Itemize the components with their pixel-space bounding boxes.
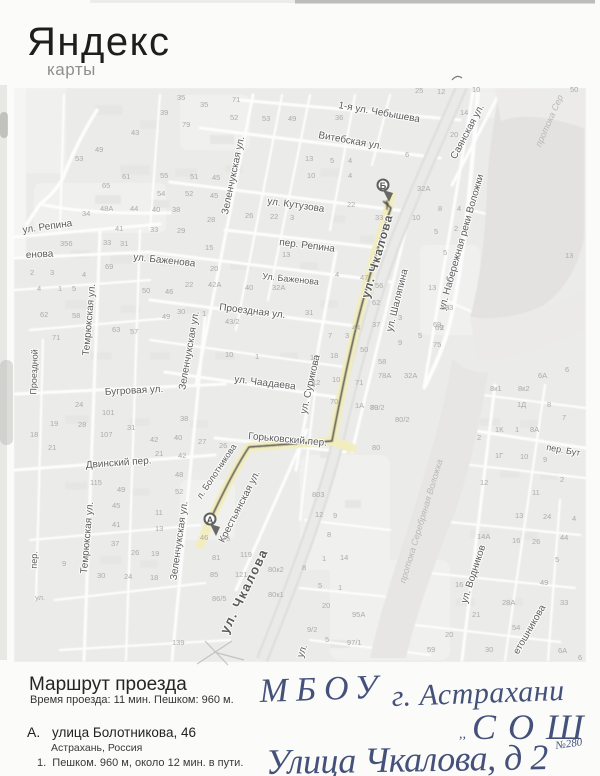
svg-text:1. Пешком. 960 м, около 12 ми: 1. Пешком. 960 м, около 12 мин. в пути.	[37, 757, 243, 769]
svg-text:карты: карты	[47, 60, 96, 79]
svg-text:Время проезда: 11 мин. Пешком:: Время проезда: 11 мин. Пешком: 960 м.	[30, 694, 234, 706]
svg-text:Астрахань, Россия: Астрахань, Россия	[51, 742, 142, 754]
svg-text:Яндекс: Яндекс	[27, 20, 171, 64]
svg-text:улица Болотникова, 46: улица Болотникова, 46	[52, 725, 196, 740]
svg-text:МБОУ: МБОУ	[258, 669, 386, 710]
svg-text:Улица Чкалова, д 2: Улица Чкалова, д 2	[265, 737, 548, 776]
svg-text:А.: А.	[27, 724, 40, 740]
svg-text:Маршрут проезда: Маршрут проезда	[29, 674, 187, 695]
